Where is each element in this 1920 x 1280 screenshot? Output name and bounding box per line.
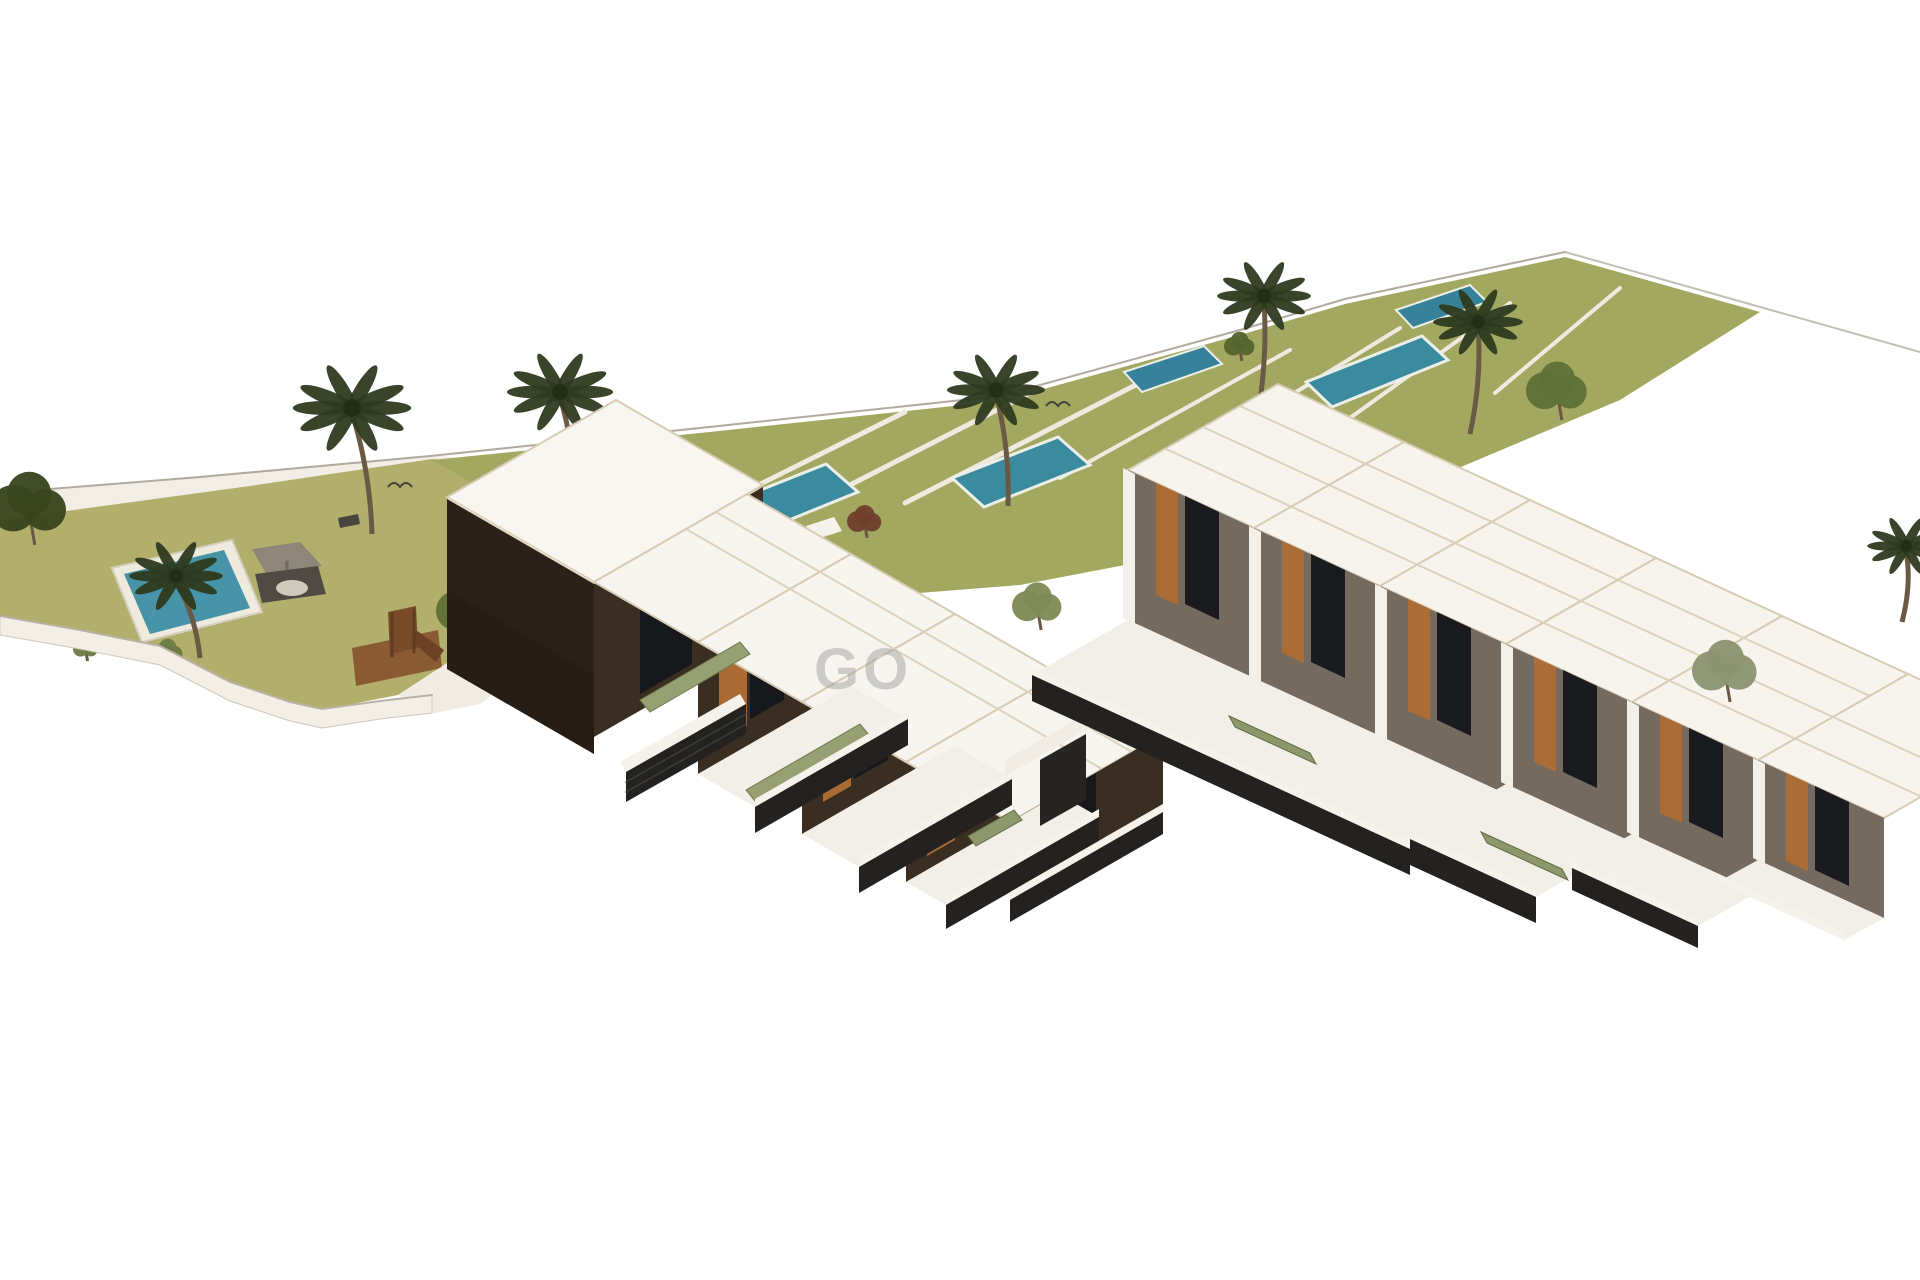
palm-tree-crown	[1257, 289, 1271, 303]
wood-slat-panel	[1156, 483, 1178, 605]
window-glass	[1563, 670, 1597, 788]
palm-tree-pool-crown	[169, 569, 183, 583]
window-glass	[1815, 786, 1849, 886]
wood-slat-panel	[1408, 599, 1430, 721]
palm-tree-edge-crown	[1900, 540, 1911, 551]
wood-slat-panel	[1660, 715, 1682, 823]
palm-tree-crown	[343, 399, 360, 416]
palm-tree-crown	[989, 383, 1003, 397]
lounge-chair	[276, 580, 308, 596]
development-render	[0, 0, 1920, 1280]
wood-slat-panel	[1786, 773, 1808, 871]
divider-column	[1501, 642, 1513, 788]
terrace-tree-pale-canopy	[1707, 640, 1744, 677]
palm-tree-edge-trunk	[1902, 551, 1908, 622]
divider-column	[1375, 584, 1387, 740]
terrace-tree-canopy	[1023, 582, 1052, 611]
garden-tree-canopy	[1231, 332, 1249, 350]
watermark: GO	[814, 636, 912, 703]
window-glass	[1689, 728, 1723, 838]
divider-column	[1627, 700, 1639, 838]
window-glass	[1437, 612, 1471, 736]
divider-column	[1753, 758, 1765, 864]
wood-slat-panel	[1534, 657, 1556, 772]
park-tree-canopy	[7, 472, 51, 516]
garden-tree-canopy	[1540, 361, 1575, 396]
divider-column	[1249, 526, 1261, 682]
wood-slat-panel	[1282, 541, 1304, 663]
garden-red-bush-canopy	[855, 505, 875, 525]
palm-tree-crown	[552, 384, 568, 400]
palm-tree-crown	[1471, 315, 1484, 328]
window-glass	[1311, 554, 1345, 678]
divider-column	[1123, 468, 1135, 624]
window-glass	[1185, 496, 1219, 620]
property-render-figure: GO	[0, 0, 1920, 1280]
